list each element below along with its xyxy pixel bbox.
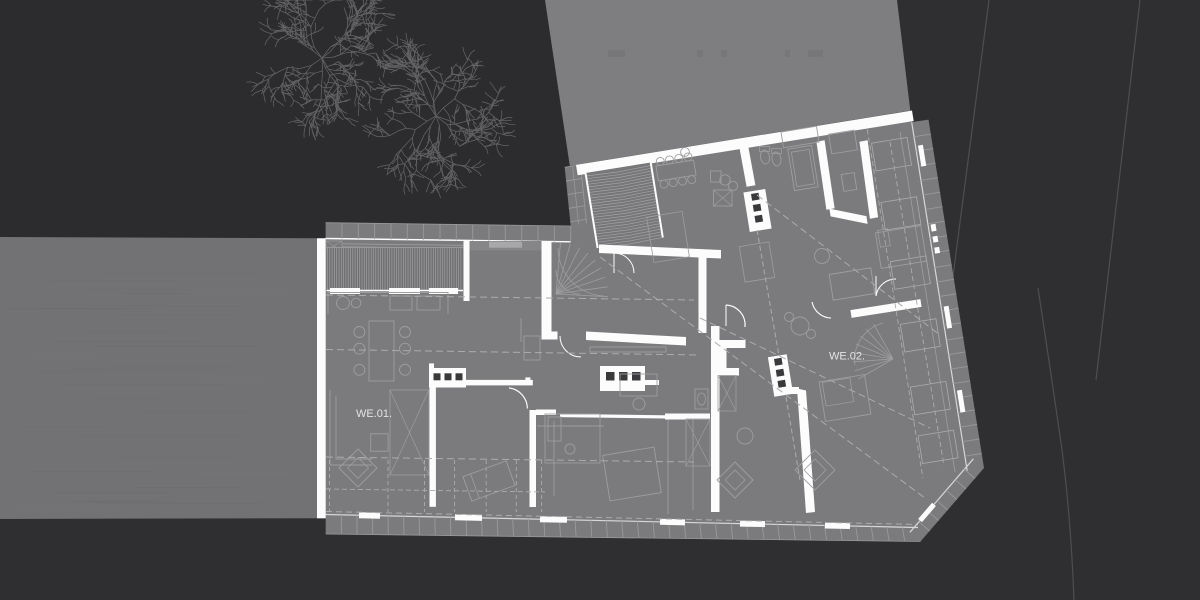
- svg-text:WE.01.: WE.01.: [356, 408, 392, 420]
- svg-text:WE.02.: WE.02.: [829, 351, 865, 363]
